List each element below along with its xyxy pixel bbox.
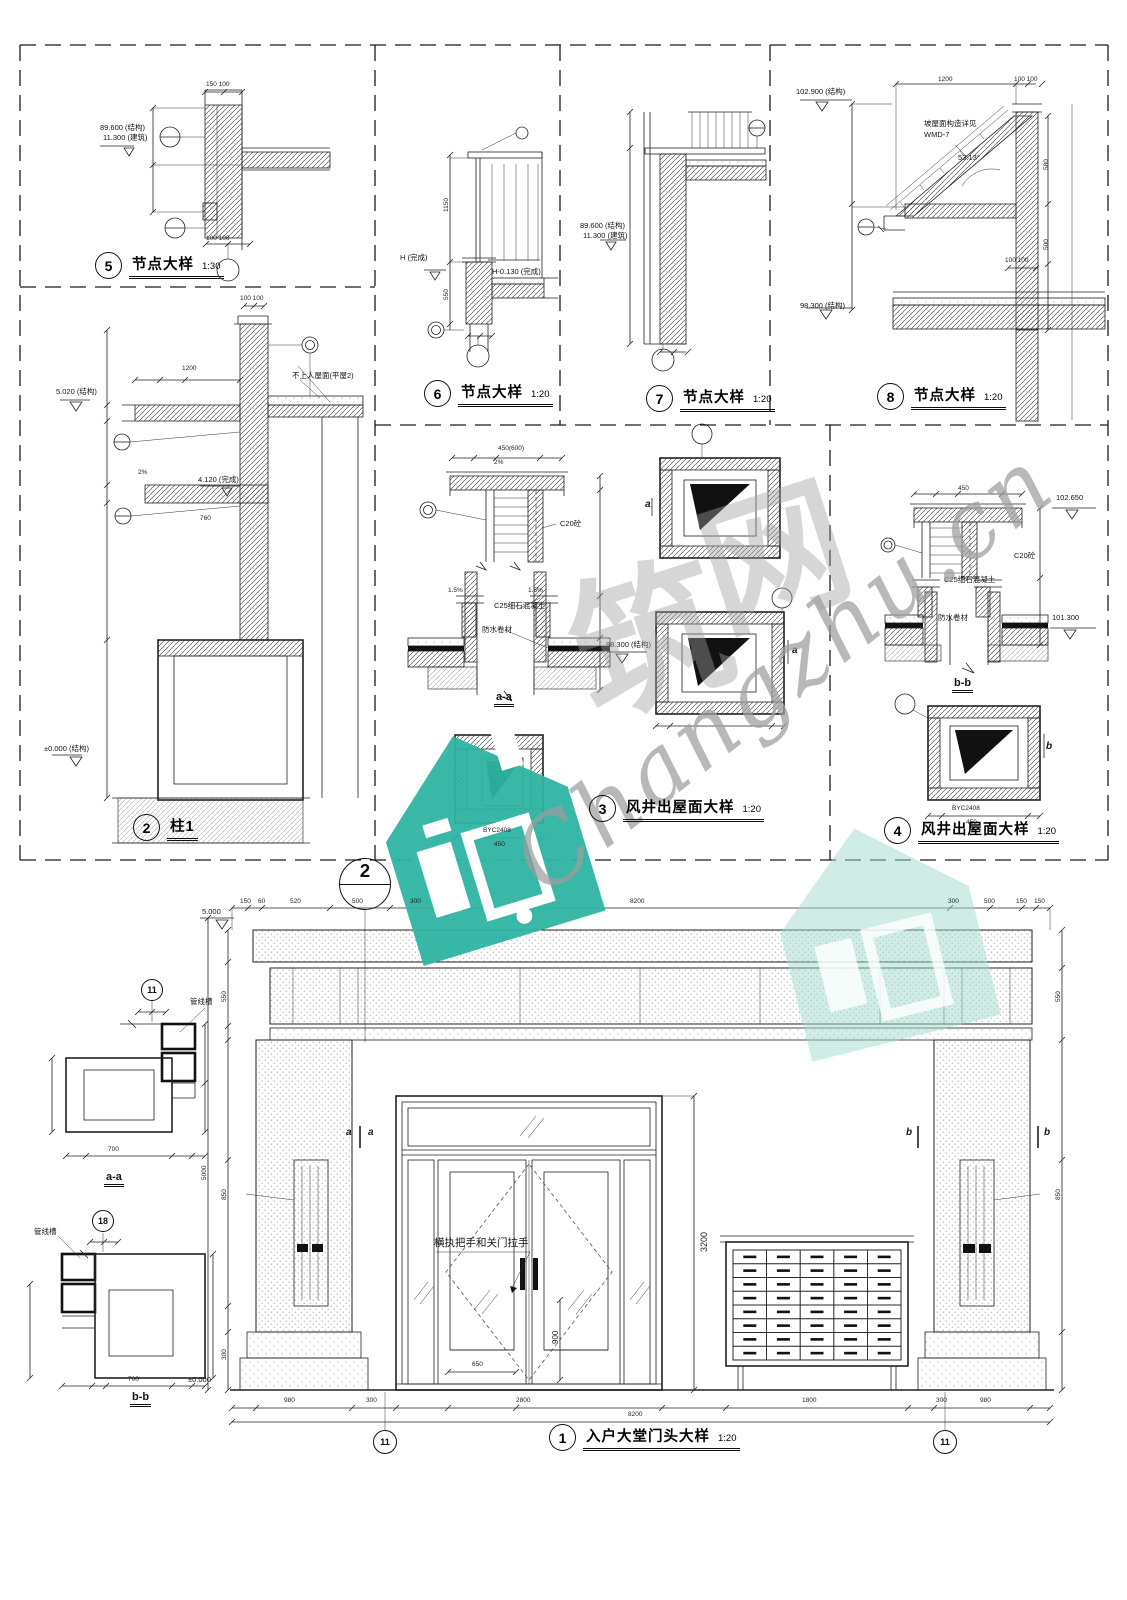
drawing-label: 150 100 [206, 82, 230, 89]
drawing-label: 4.120 (完成) [198, 476, 239, 484]
detail-title: 5 节点大样1:30 [95, 252, 224, 279]
drawing-label: 500 [1044, 239, 1051, 250]
detail-title: 2 柱1 [133, 814, 198, 841]
detail-number-badge: 1 [549, 1424, 576, 1451]
drawing-label: 550 [222, 991, 229, 1002]
drawing-label: 300 [936, 1398, 947, 1405]
detail-title-underline: 风井出屋面大样1:20 [623, 796, 764, 822]
detail-title: 4 风井出屋面大样1:20 [884, 817, 1059, 844]
detail-title-text: 节点大样 [683, 386, 745, 407]
drawing-label: 2800 [516, 1398, 530, 1405]
drawing-label: C20砼 [560, 520, 581, 528]
detail-number-badge: 5 [95, 252, 122, 279]
panel-6-node-detail [424, 127, 558, 367]
callout-number: 2 [340, 859, 390, 885]
drawing-label: 700 [128, 1377, 139, 1384]
drawing-label: 300 [948, 899, 959, 906]
drawing-label: a [368, 1128, 374, 1138]
detail-title-underline: 风井出屋面大样1:20 [918, 818, 1059, 844]
drawing-label: 不上人屋面(平屋2) [292, 372, 354, 380]
panel-8-roof-node-detail [800, 81, 1105, 421]
drawing-label: H (完成) [400, 254, 428, 262]
drawing-sheet: 89.600 (结构)11.300 (建筑)150 100100 100100 … [0, 0, 1127, 1600]
detail-title-text: 风井出屋面大样 [626, 796, 735, 817]
drawing-label: 11.300 (建筑) [583, 232, 627, 240]
detail-number-badge: 4 [884, 817, 911, 844]
drawing-label: 98.300 (结构) [800, 302, 845, 310]
drawing-label: 760 [200, 516, 211, 523]
drawing-label: 101.300 [1052, 614, 1079, 622]
detail-title-text: 节点大样 [461, 381, 523, 402]
detail-scale-text: 1:20 [1038, 826, 1057, 837]
drawing-label: 8200 [630, 899, 644, 906]
detail-number-badge: 2 [133, 814, 160, 841]
drawing-label: 坡屋面构造详见 [924, 120, 977, 128]
panel-18-section-bb [27, 1233, 216, 1389]
drawing-label: 1.5% [448, 588, 463, 595]
detail-callout: 18 [92, 1210, 114, 1232]
detail-title-text: 节点大样 [914, 384, 976, 405]
detail-callout: 11 [933, 1430, 957, 1454]
detail-callout: 11 [373, 1430, 397, 1454]
detail-scale-text: 1:20 [531, 389, 550, 400]
drawing-label: 8200 [628, 1412, 642, 1419]
drawing-label: a-a [494, 692, 514, 707]
drawing-label: b-b [952, 678, 973, 693]
drawing-label: 700 [108, 1147, 119, 1154]
drawing-label: a [346, 1128, 352, 1138]
drawing-label: 5.000 [202, 908, 221, 916]
detail-title-text: 风井出屋面大样 [921, 818, 1030, 839]
drawing-label: 60 [258, 899, 265, 906]
detail-number-badge: 6 [424, 380, 451, 407]
detail-title-text: 入户大堂门头大样 [586, 1425, 710, 1446]
mailbox-grid [733, 1250, 901, 1360]
drawing-label: 550 [1056, 991, 1063, 1002]
drawing-label: 300 [222, 1349, 229, 1360]
drawing-label: 100 100 [1005, 258, 1029, 265]
drawing-label: C25细石混凝土 [494, 602, 545, 610]
detail-scale-text: 1:20 [743, 804, 762, 815]
drawing-label: WMD-7 [924, 131, 949, 139]
drawing-label: 防水卷材 [938, 614, 968, 622]
detail-scale-text: 1:20 [718, 1433, 737, 1444]
drawing-label: 11.300 (建筑) [103, 134, 147, 142]
drawing-label: H-0.130 (完成) [492, 268, 541, 276]
drawing-label: 横执把手和关门拉手 [434, 1238, 529, 1249]
drawing-label: 150 [1034, 899, 1045, 906]
drawing-label: BYC2408 [952, 806, 980, 813]
detail-title-underline: 柱1 [167, 815, 198, 841]
drawing-label: 650 [472, 1362, 483, 1369]
drawing-label: 980 [980, 1398, 991, 1405]
drawing-label: 管线槽 [34, 1228, 57, 1236]
drawing-label: b [1046, 742, 1052, 752]
panel-7-node-detail [600, 109, 766, 371]
detail-scale-text: 1:30 [202, 261, 221, 272]
drawing-label: ±0.000 [188, 1376, 211, 1384]
drawing-label: 900 [552, 1331, 560, 1344]
drawing-label: 3200 [700, 1232, 709, 1252]
drawing-label: 550 [444, 289, 451, 300]
drawing-label: 980 [284, 1398, 295, 1405]
callout-number: 18 [93, 1211, 113, 1231]
detail-number-badge: 8 [877, 383, 904, 410]
detail-title: 7 节点大样1:20 [646, 385, 775, 412]
drawing-label: 100 100 [1014, 77, 1038, 84]
drawing-label: 850 [1056, 1189, 1063, 1200]
drawing-label: 850 [222, 1189, 229, 1200]
drawing-label: 520 [290, 899, 301, 906]
drawing-label: 580 [1044, 159, 1051, 170]
detail-title: 1 入户大堂门头大样1:20 [549, 1424, 740, 1451]
callout-sheet-ref [340, 885, 390, 910]
detail-title-text: 柱1 [170, 815, 195, 836]
drawing-label: 100 100 [240, 296, 264, 303]
detail-title-underline: 节点大样1:30 [129, 253, 224, 279]
drawing-label: 53.13° [958, 154, 980, 162]
drawing-label: 89.600 (结构) [100, 124, 145, 132]
panel-2-column-detail [52, 303, 363, 843]
drawing-label: 300 [366, 1398, 377, 1405]
drawing-label: a [645, 500, 651, 510]
drawing-label: 150 [1016, 899, 1027, 906]
panel-11-section-aa [49, 1001, 208, 1159]
drawing-label: 2% [494, 460, 503, 467]
detail-title-underline: 节点大样1:20 [680, 386, 775, 412]
detail-number-badge: 3 [589, 795, 616, 822]
detail-callout: 11 [141, 979, 163, 1001]
drawing-label: 1800 [802, 1398, 816, 1405]
detail-title-underline: 入户大堂门头大样1:20 [583, 1425, 740, 1451]
drawing-label: 150 [240, 899, 251, 906]
panel-grid-dashed-borders [20, 45, 1108, 860]
drawing-label: 89.600 (结构) [580, 222, 625, 230]
callout-number: 11 [934, 1431, 956, 1453]
drawing-label: ±0.000 (结构) [44, 745, 89, 753]
detail-title: 3 风井出屋面大样1:20 [589, 795, 764, 822]
detail-scale-text: 1:20 [753, 394, 772, 405]
detail-title-text: 节点大样 [132, 253, 194, 274]
detail-scale-text: 1:20 [984, 392, 1003, 403]
callout-number: 11 [374, 1431, 396, 1453]
detail-title-underline: 节点大样1:20 [458, 381, 553, 407]
drawing-label: 500 [984, 899, 995, 906]
drawing-label: 450(600) [498, 446, 524, 453]
drawing-label: 管线槽 [190, 998, 213, 1006]
drawing-label: b-b [130, 1392, 151, 1407]
drawing-label: 102.900 (结构) [796, 88, 845, 96]
drawing-label: 5000 [202, 1166, 209, 1180]
detail-callout: 2 [339, 858, 391, 910]
callout-number: 11 [142, 980, 162, 1000]
drawing-label: 100 100 [206, 236, 230, 243]
detail-title-underline: 节点大样1:20 [911, 384, 1006, 410]
drawing-label: 1200 [938, 77, 952, 84]
drawing-label: 1200 [182, 366, 196, 373]
drawing-label: a-a [104, 1172, 124, 1187]
drawing-label: b [906, 1128, 912, 1138]
drawing-label: b [1044, 1128, 1050, 1138]
detail-title: 8 节点大样1:20 [877, 383, 1006, 410]
detail-title: 6 节点大样1:20 [424, 380, 553, 407]
drawing-label: 防水卷材 [482, 626, 512, 634]
drawing-label: 1150 [444, 198, 451, 212]
drawing-label: 5.020 (结构) [56, 388, 97, 396]
drawing-label: 2% [138, 470, 147, 477]
detail-number-badge: 7 [646, 385, 673, 412]
drawing-label: 300 [410, 899, 421, 906]
drawing-label: 1.5% [528, 588, 543, 595]
